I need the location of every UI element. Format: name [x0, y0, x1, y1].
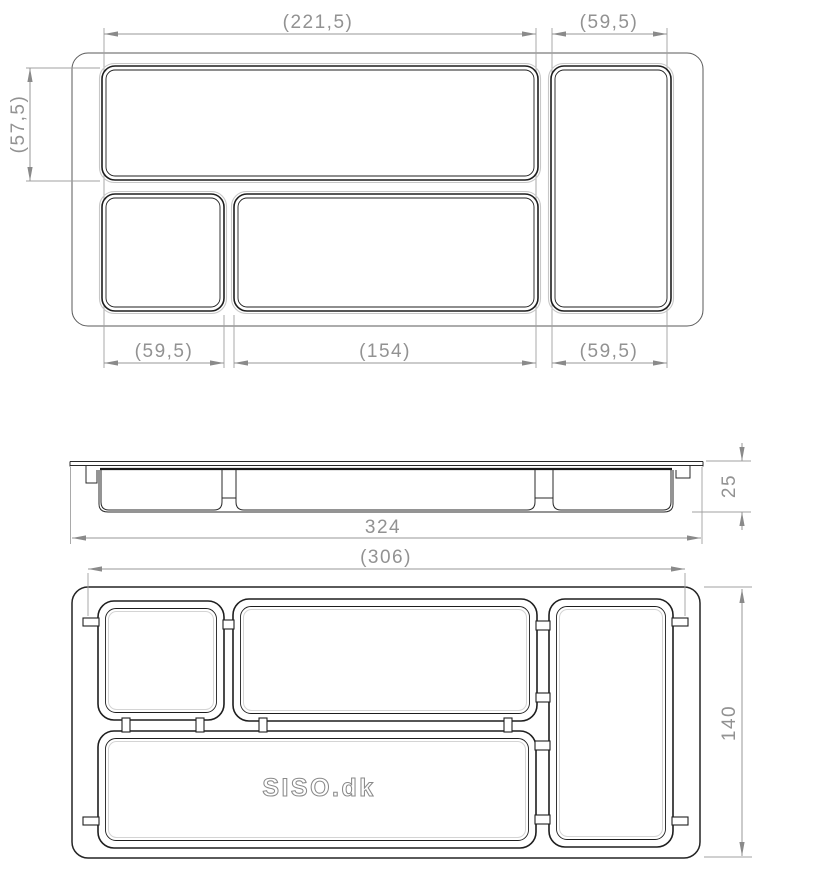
brand-engraving-text: SISO.dk [262, 774, 375, 802]
bridge-long-to-tall-2 [536, 693, 550, 702]
dim-label-top-width-small: (59,5) [135, 341, 194, 362]
bottom-view: SISO.dk (306) 140 [72, 547, 752, 858]
bridge-small-to-long [223, 620, 234, 629]
bridge-row-3 [259, 718, 267, 732]
dim-label-top-height-left: (57,5) [8, 95, 29, 154]
bridge-long-to-tall-1 [536, 621, 550, 630]
side-view-compartment-sections [101, 470, 671, 510]
side-view: 324 25 [70, 443, 751, 544]
dim-label-bottom-depth: 140 [719, 705, 740, 741]
bridge-row-2 [196, 718, 204, 732]
side-view-dimension-lines [72, 443, 742, 538]
bridge-large-to-tall-2 [535, 815, 550, 824]
bridge-row-4 [504, 718, 512, 732]
compartment-long-bottom [234, 194, 538, 311]
compartment-bottom-long-top [233, 599, 537, 721]
sprue-tab-left-upper [83, 618, 99, 626]
technical-drawing-page: (221,5) (59,5) (57,5) (59,5) (154) (59,5… [0, 0, 816, 879]
side-view-extension-lines [71, 461, 752, 544]
sprue-tab-right-upper [672, 618, 688, 626]
dim-label-top-width-main: (221,5) [283, 12, 354, 33]
dim-label-side-height: 25 [719, 474, 740, 498]
dim-label-top-width-right: (59,5) [580, 12, 639, 33]
side-view-body [99, 470, 673, 512]
technical-drawing-canvas: (221,5) (59,5) (57,5) (59,5) (154) (59,5… [0, 0, 816, 879]
sprue-tab-right-lower [672, 817, 688, 825]
dim-label-top-width-long: (154) [359, 341, 411, 362]
side-view-flange [70, 462, 703, 467]
dim-label-side-overall-width: 324 [365, 517, 401, 538]
compartment-small-square [102, 194, 224, 311]
bridge-row-1 [122, 718, 130, 732]
bridge-large-to-tall-1 [535, 741, 550, 750]
dim-label-bottom-width-ref: (306) [360, 547, 412, 568]
compartment-tall-right [551, 66, 671, 311]
compartment-bottom-tall-right [549, 599, 673, 847]
compartment-bottom-small-square [98, 601, 224, 720]
dim-label-top-width-right-bottom: (59,5) [580, 341, 639, 362]
top-view: (221,5) (59,5) (57,5) (59,5) (154) (59,5… [8, 12, 703, 368]
sprue-tab-left-lower [83, 817, 99, 825]
compartment-large-top [102, 66, 538, 180]
